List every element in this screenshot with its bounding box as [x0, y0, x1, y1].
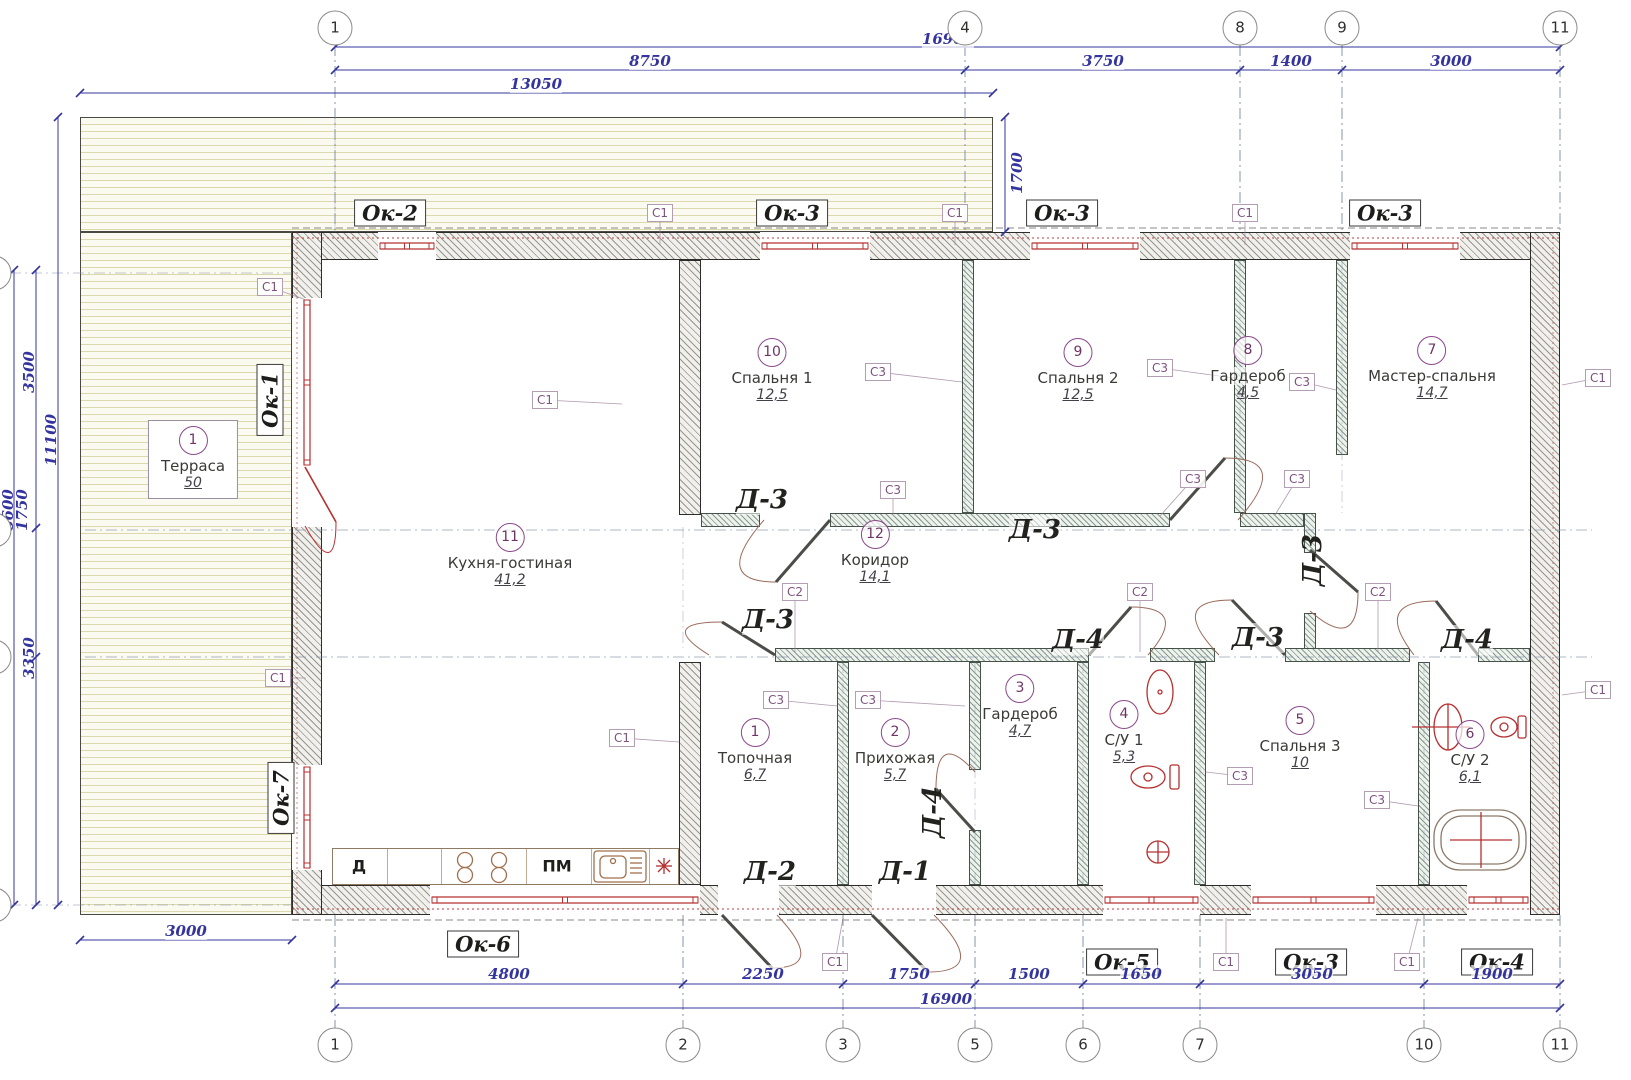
counter-divider — [387, 849, 388, 884]
wall-type-tag: С3 — [1147, 359, 1173, 377]
wall-type-tag: С2 — [1127, 583, 1153, 601]
dimension-tick — [1556, 980, 1564, 988]
dimension-value: 13050 — [510, 75, 562, 93]
room-name: Прихожая — [855, 749, 935, 767]
window-opening — [1350, 232, 1460, 260]
dimension-value: 3750 — [1082, 52, 1124, 70]
tag-leader-dot — [1416, 916, 1420, 920]
wall-type-tag: С1 — [1232, 204, 1258, 222]
interior-partition-wall — [1418, 662, 1430, 885]
counter-divider — [526, 849, 527, 884]
counter-divider — [441, 849, 442, 884]
room-area: 4,5 — [1210, 385, 1285, 401]
dimension-value: 1400 — [1270, 52, 1312, 70]
room-number-badge: 3 — [1005, 674, 1034, 703]
wall-type-tag: С1 — [942, 204, 968, 222]
wall-type-tag: С2 — [782, 583, 808, 601]
dimension-value: 16900 — [920, 990, 972, 1008]
wall-type-tag: С2 — [1365, 583, 1391, 601]
dimension-tick — [961, 66, 969, 74]
tag-leader-dot — [963, 704, 967, 708]
room-label: 4С/У 15,3 — [1105, 700, 1144, 765]
room-name: Терраса — [161, 457, 225, 475]
interior-structural-wall — [679, 260, 701, 515]
interior-partition-wall — [775, 648, 1089, 662]
room-name: Спальня 1 — [731, 369, 812, 387]
dimension-value: 1900 — [1471, 965, 1513, 983]
dimension-tick — [839, 980, 847, 988]
dimension-value: 1750 — [13, 489, 31, 531]
tag-leader — [868, 700, 965, 706]
room-area: 10 — [1259, 755, 1340, 771]
door-leaf — [872, 915, 928, 972]
window-tag: Ок-3 — [756, 200, 828, 227]
door-tag: Д-3 — [1298, 534, 1328, 586]
grid-axis-bubble — [0, 888, 12, 923]
dimension-tick — [679, 980, 687, 988]
window-opening — [1251, 885, 1376, 915]
dimension-tick — [331, 66, 339, 74]
tag-leader-dot — [620, 402, 624, 406]
wall-type-tag: С3 — [1284, 470, 1310, 488]
door-swing-arc — [772, 915, 801, 968]
interior-partition-wall — [1077, 662, 1089, 885]
room-area: 5,7 — [855, 767, 935, 783]
window-opening — [760, 232, 870, 260]
kitchen-counter — [332, 848, 679, 885]
window-opening — [292, 765, 322, 870]
tag-leader-dot — [1560, 693, 1564, 697]
tag-leader-dot — [1560, 383, 1564, 387]
room-area: 6,1 — [1451, 769, 1490, 785]
wall-type-tag: С1 — [822, 953, 848, 971]
window-opening — [1103, 885, 1200, 915]
fixture — [1518, 716, 1526, 738]
window-tag: Ок-1 — [257, 364, 284, 436]
wall-type-tag: С3 — [763, 691, 789, 709]
terrace-deck — [80, 117, 993, 232]
door-swing-arc — [1195, 600, 1232, 655]
interior-partition-wall — [837, 662, 849, 885]
window-opening — [1030, 232, 1140, 260]
room-name: С/У 2 — [1451, 751, 1490, 769]
door-tag: Д-1 — [879, 857, 931, 887]
door-tag: Д-4 — [1441, 625, 1493, 655]
room-area: 4,7 — [982, 723, 1057, 739]
room-number-badge: 8 — [1233, 336, 1262, 365]
fixture — [1491, 717, 1517, 737]
dimension-tick — [1001, 113, 1009, 121]
grid-axis-bubble: 7 — [1183, 1028, 1218, 1063]
floor-plan-canvas: ДПМ1Терраса5011Кухня-гостиная41,210Спаль… — [0, 0, 1631, 1080]
room-number-badge: 9 — [1063, 338, 1092, 367]
room-area: 5,3 — [1105, 749, 1144, 765]
fixture — [1147, 670, 1173, 714]
window-opening — [378, 232, 436, 260]
room-number-badge: 5 — [1285, 706, 1314, 735]
fixture — [1441, 816, 1519, 864]
dimension-tick — [1420, 980, 1428, 988]
room-number-badge: 7 — [1417, 336, 1446, 365]
room-name: Спальня 2 — [1037, 369, 1118, 387]
wall-type-tag: С3 — [865, 363, 891, 381]
wall-type-tag: С1 — [647, 204, 673, 222]
dimension-value: 1650 — [1120, 965, 1162, 983]
dimension-tick — [288, 936, 296, 944]
room-number-badge: 4 — [1109, 700, 1138, 729]
grid-axis-bubble: 10 — [1407, 1028, 1442, 1063]
door-tag: Д-4 — [918, 786, 948, 838]
door-opening — [872, 885, 936, 915]
grid-axis-bubble: 6 — [1066, 1028, 1101, 1063]
fixture — [1500, 723, 1508, 731]
room-number-badge: 12 — [860, 520, 889, 549]
door-swing-arc — [1397, 601, 1436, 655]
room-label: 7Мастер-спальня14,7 — [1368, 336, 1496, 401]
door-leaf — [1170, 458, 1225, 520]
wall-type-tag: С1 — [609, 729, 635, 747]
room-name: Топочная — [718, 749, 792, 767]
interior-partition-wall — [1285, 648, 1410, 662]
tag-leader-dot — [1224, 916, 1228, 920]
wall-type-tag: С1 — [265, 669, 291, 687]
interior-partition-wall — [1150, 648, 1215, 662]
tag-leader-dot — [841, 916, 845, 920]
dimension-value: 11100 — [42, 414, 60, 466]
room-number-badge: 6 — [1455, 720, 1484, 749]
dimension-value: 3500 — [20, 351, 38, 393]
dimension-tick — [1338, 66, 1346, 74]
room-label: 2Прихожая5,7 — [855, 718, 935, 783]
room-label: 1Топочная6,7 — [718, 718, 792, 783]
interior-structural-wall — [679, 662, 701, 885]
door-swing-arc — [740, 520, 776, 582]
wall-type-tag: С3 — [1289, 373, 1315, 391]
room-area: 14,1 — [841, 569, 909, 585]
door-opening — [718, 885, 779, 915]
room-name: Гардероб — [982, 705, 1057, 723]
room-number-badge: 1 — [178, 426, 207, 455]
dimension-value: 1500 — [1008, 965, 1050, 983]
wall-type-tag: С3 — [855, 691, 881, 709]
dimension-tick — [76, 89, 84, 97]
window-tag: Ок-7 — [268, 762, 295, 834]
room-label: 12Коридор14,1 — [841, 520, 909, 585]
door-tag: Д-4 — [1052, 625, 1104, 655]
grid-axis-bubble: 1 — [318, 1028, 353, 1063]
wall-type-tag: С3 — [1227, 767, 1253, 785]
door-swing-arc — [1310, 592, 1358, 628]
dimension-tick — [32, 266, 40, 274]
dimension-tick — [32, 901, 40, 909]
counter-divider — [591, 849, 592, 884]
room-label: 10Спальня 112,5 — [731, 338, 812, 403]
fixture — [1158, 690, 1162, 694]
interior-partition-wall — [969, 662, 981, 770]
room-name: Мастер-спальня — [1368, 367, 1496, 385]
wall-type-tag: С3 — [1364, 791, 1390, 809]
wall-type-tag: С1 — [1394, 953, 1420, 971]
door-tag: Д-3 — [736, 485, 788, 515]
dimension-value: 3000 — [165, 922, 207, 940]
grid-axis-bubble: 5 — [958, 1028, 993, 1063]
fixture — [1170, 765, 1179, 789]
dimension-value: 3000 — [1430, 52, 1472, 70]
grid-axis-bubble: 11 — [1543, 11, 1578, 46]
dimension-value: 4800 — [488, 965, 530, 983]
door-tag: Д-3 — [1232, 623, 1284, 653]
dimension-tick — [971, 980, 979, 988]
window-opening — [1467, 885, 1530, 915]
wall-type-tag: С1 — [1585, 369, 1611, 387]
room-area: 41,2 — [448, 572, 572, 588]
dimension-tick — [32, 524, 40, 532]
interior-partition-wall — [969, 830, 981, 885]
wall-type-tag: С1 — [257, 278, 283, 296]
door-opening — [292, 467, 322, 527]
room-number-badge: 2 — [881, 718, 910, 747]
grid-axis-bubble: 1 — [318, 11, 353, 46]
grid-axis-bubble: 11 — [1543, 1028, 1578, 1063]
window-opening — [430, 885, 700, 915]
window-tag: Ок-6 — [447, 931, 519, 958]
room-area: 14,7 — [1368, 385, 1496, 401]
grid-axis-bubble: 4 — [948, 11, 983, 46]
room-area: 50 — [161, 475, 225, 491]
grid-axis-bubble — [0, 640, 12, 675]
terrace-deck — [80, 232, 292, 915]
dimension-tick — [1236, 66, 1244, 74]
dimension-tick — [331, 1004, 339, 1012]
door-swing-arc — [685, 622, 722, 655]
room-name: Гардероб — [1210, 367, 1285, 385]
room-number-badge: 11 — [496, 523, 525, 552]
room-label: 8Гардероб4,5 — [1210, 336, 1285, 401]
grid-axis-bubble: 9 — [1325, 11, 1360, 46]
grid-axis-bubble: 2 — [666, 1028, 701, 1063]
grid-axis-bubble: 3 — [826, 1028, 861, 1063]
interior-partition-wall — [962, 260, 974, 513]
interior-partition-wall — [1240, 513, 1304, 527]
fixture — [1147, 841, 1169, 863]
room-area: 12,5 — [1037, 387, 1118, 403]
room-name: Кухня-гостиная — [448, 554, 572, 572]
room-name: Спальня 3 — [1259, 737, 1340, 755]
room-area: 6,7 — [718, 767, 792, 783]
dimension-value: 2250 — [742, 965, 784, 983]
grid-axis-bubble — [0, 256, 12, 291]
room-label: 9Спальня 212,5 — [1037, 338, 1118, 403]
room-label: 6С/У 26,1 — [1451, 720, 1490, 785]
dimension-value: 8750 — [629, 52, 671, 70]
fixture — [1434, 810, 1526, 870]
door-swing-arc — [928, 915, 961, 972]
interior-partition-wall — [701, 513, 760, 527]
fixture — [1131, 766, 1165, 788]
dimension-tick — [1556, 66, 1564, 74]
room-label: 5Спальня 310 — [1259, 706, 1340, 771]
fixture — [1144, 773, 1152, 781]
interior-partition-wall — [1194, 662, 1206, 885]
door-tag: Д-3 — [1009, 515, 1061, 545]
door-leaf — [722, 915, 772, 968]
room-label: 3Гардероб4,7 — [982, 674, 1057, 739]
counter-divider — [649, 849, 650, 884]
exterior-wall — [1530, 232, 1560, 915]
dimension-tick — [54, 113, 62, 121]
window-tag: Ок-3 — [1026, 200, 1098, 227]
window-tag: Ок-2 — [354, 200, 426, 227]
wall-type-tag: С3 — [1180, 470, 1206, 488]
interior-partition-wall — [1336, 260, 1348, 455]
dimension-tick — [1556, 1004, 1564, 1012]
room-name: С/У 1 — [1105, 731, 1144, 749]
dimension-value: 3050 — [1291, 965, 1333, 983]
door-tag: Д-3 — [742, 605, 794, 635]
dimension-tick — [989, 89, 997, 97]
dimension-value: 3350 — [20, 637, 38, 679]
dimension-value: 1750 — [888, 965, 930, 983]
tag-leader-dot — [1138, 650, 1142, 654]
window-tag: Ок-3 — [1349, 200, 1421, 227]
dimension-value: 1700 — [1008, 152, 1026, 194]
room-name: Коридор — [841, 551, 909, 569]
room-number-badge: 1 — [741, 718, 770, 747]
window-opening — [292, 298, 322, 467]
grid-axis-bubble: 8 — [1223, 11, 1258, 46]
wall-type-tag: С1 — [1585, 681, 1611, 699]
dimension-tick — [331, 980, 339, 988]
room-number-badge: 10 — [757, 338, 786, 367]
dimension-tick — [76, 936, 84, 944]
door-tag: Д-2 — [744, 857, 796, 887]
wall-type-tag: С1 — [532, 391, 558, 409]
wall-type-tag: С3 — [880, 481, 906, 499]
door-leaf — [776, 520, 830, 582]
room-label: 1Терраса50 — [148, 420, 238, 499]
dimension-tick — [54, 901, 62, 909]
room-label: 11Кухня-гостиная41,2 — [448, 523, 572, 588]
dimension-tick — [1196, 980, 1204, 988]
dimension-tick — [1079, 980, 1087, 988]
kitchen-appliance-label: ПМ — [542, 857, 571, 876]
wall-type-tag: С1 — [1213, 953, 1239, 971]
kitchen-appliance-label: Д — [352, 857, 366, 876]
room-area: 12,5 — [731, 387, 812, 403]
